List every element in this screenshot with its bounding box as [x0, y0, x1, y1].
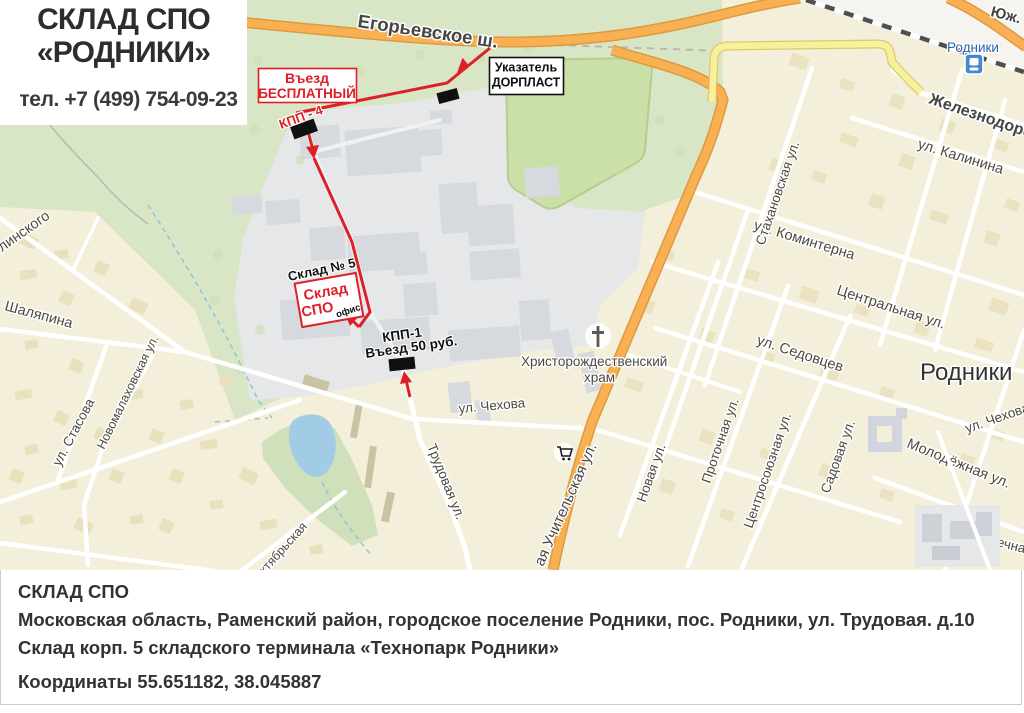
svg-text:Въезд: Въезд	[285, 70, 329, 86]
svg-text:храм: храм	[584, 370, 615, 385]
svg-text:Указатель: Указатель	[495, 61, 558, 75]
svg-text:Христорождественский: Христорождественский	[521, 354, 667, 369]
svg-text:Родники: Родники	[920, 359, 1012, 386]
svg-text:Родники: Родники	[947, 40, 999, 55]
svg-text:БЕСПЛАТНЫЙ: БЕСПЛАТНЫЙ	[258, 86, 356, 101]
svg-text:ДОРПЛАСТ: ДОРПЛАСТ	[492, 76, 561, 90]
